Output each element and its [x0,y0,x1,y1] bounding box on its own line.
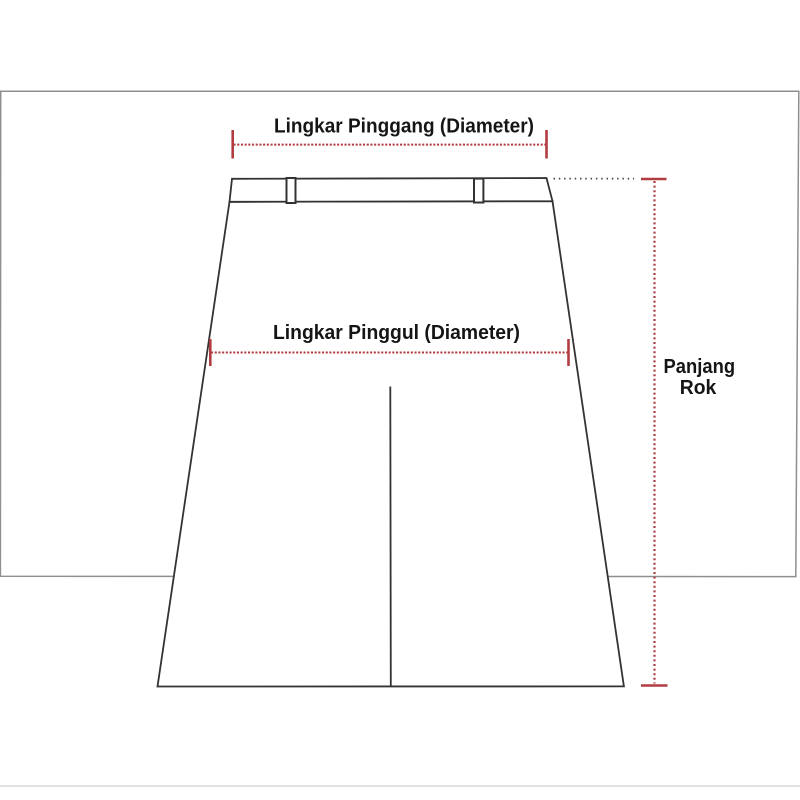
svg-text:Panjang: Panjang [664,356,736,378]
svg-text:Lingkar Pinggul (Diameter): Lingkar Pinggul (Diameter) [273,322,520,344]
svg-text:Rok: Rok [680,377,717,399]
svg-text:Lingkar Pinggang (Diameter): Lingkar Pinggang (Diameter) [274,115,534,137]
